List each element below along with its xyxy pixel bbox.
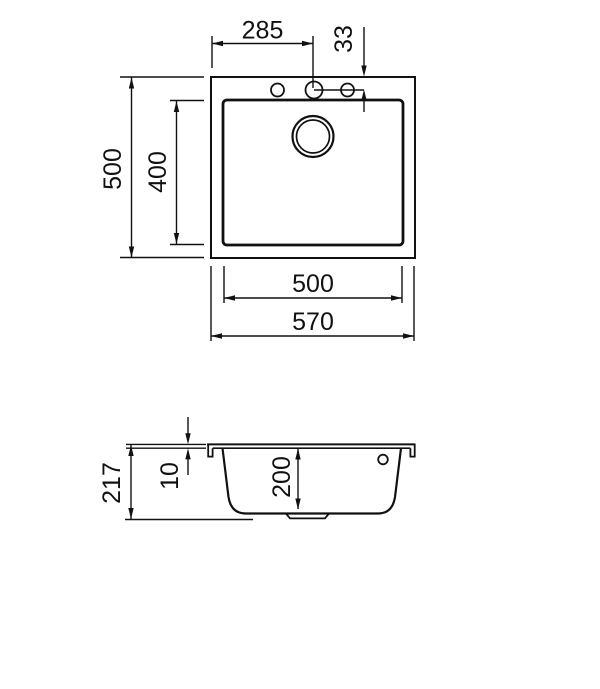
drain-outer-circle: [293, 116, 334, 157]
dim-label-200: 200: [268, 456, 296, 498]
arrowhead-right-icon: [302, 41, 313, 46]
dim-bowl-depth: 400: [144, 101, 204, 245]
dim-bowl-width: 500: [224, 266, 402, 303]
arrowhead-up-icon: [128, 445, 133, 456]
dim-overall-height: 217: [98, 445, 134, 519]
dim-label-33: 33: [330, 25, 358, 53]
dim-label-285: 285: [242, 17, 284, 45]
drawing-svg: 285 33 500 400: [0, 0, 600, 689]
arrowhead-right-icon: [391, 295, 402, 300]
overflow-hole: [378, 455, 388, 465]
arrowhead-down-icon: [185, 433, 190, 444]
arrowhead-down-icon: [174, 233, 179, 244]
arrowhead-up-icon: [361, 90, 366, 101]
arrowhead-down-icon: [295, 499, 300, 510]
dim-label-570: 570: [292, 308, 334, 336]
dim-label-217: 217: [98, 462, 126, 504]
dim-label-10: 10: [156, 462, 184, 490]
arrowhead-up-icon: [129, 78, 134, 89]
arrowhead-right-icon: [403, 333, 414, 338]
sink-outer-outline: [211, 77, 415, 258]
dim-label-400: 400: [144, 151, 172, 193]
arrowhead-up-icon: [295, 449, 300, 460]
dim-bowl-inner-height: 200: [268, 449, 301, 510]
rim-left-lip: [208, 444, 212, 456]
bowl-outline: [223, 100, 403, 245]
arrowhead-down-icon: [361, 66, 366, 77]
side-view: 217 10 200: [98, 417, 416, 520]
dim-label-500-bottom: 500: [292, 270, 334, 298]
arrowhead-left-icon: [212, 41, 223, 46]
arrowhead-down-icon: [128, 508, 133, 519]
top-view: 285 33 500 400: [99, 17, 415, 342]
sink-technical-drawing: 285 33 500 400: [0, 0, 600, 689]
arrowhead-up-icon: [185, 448, 190, 459]
dim-label-500-left: 500: [99, 148, 127, 190]
rim-right-lip: [410, 444, 414, 456]
arrowhead-left-icon: [224, 295, 235, 300]
drain-inner-circle: [297, 120, 330, 153]
faucet-hole-left: [271, 84, 284, 97]
bowl-section-outline: [223, 448, 402, 513]
arrowhead-down-icon: [129, 247, 134, 258]
arrowhead-left-icon: [211, 333, 222, 338]
dim-rim-thickness: 10: [156, 417, 191, 490]
arrowhead-up-icon: [174, 101, 179, 112]
